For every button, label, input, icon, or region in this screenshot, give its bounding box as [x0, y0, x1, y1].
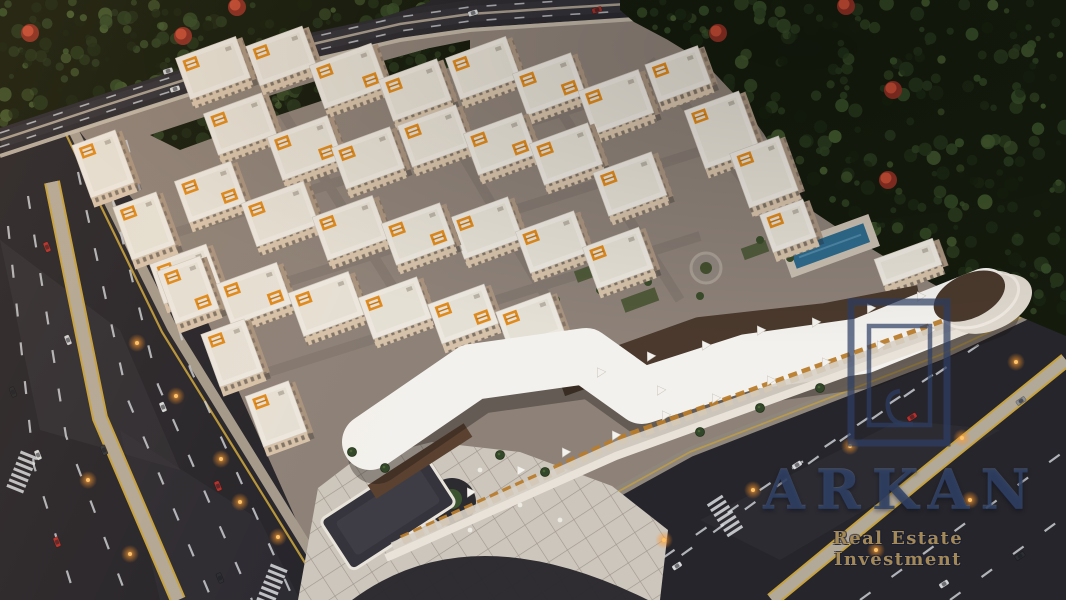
street-tree	[756, 236, 764, 244]
watermark-brand: ARKAN	[763, 462, 1033, 519]
palm-tree	[756, 404, 765, 413]
watermark-tagline: Real Estate Investment	[766, 528, 1030, 570]
palm-tree	[496, 451, 505, 460]
palm-tree	[348, 448, 357, 457]
palm-tree	[381, 464, 390, 473]
street-tree	[696, 292, 704, 300]
palm-tree	[541, 468, 550, 477]
palm-tree	[696, 428, 705, 437]
palm-tree	[816, 384, 825, 393]
aerial-render-scene: ARKAN Real Estate Investment	[0, 0, 1066, 600]
